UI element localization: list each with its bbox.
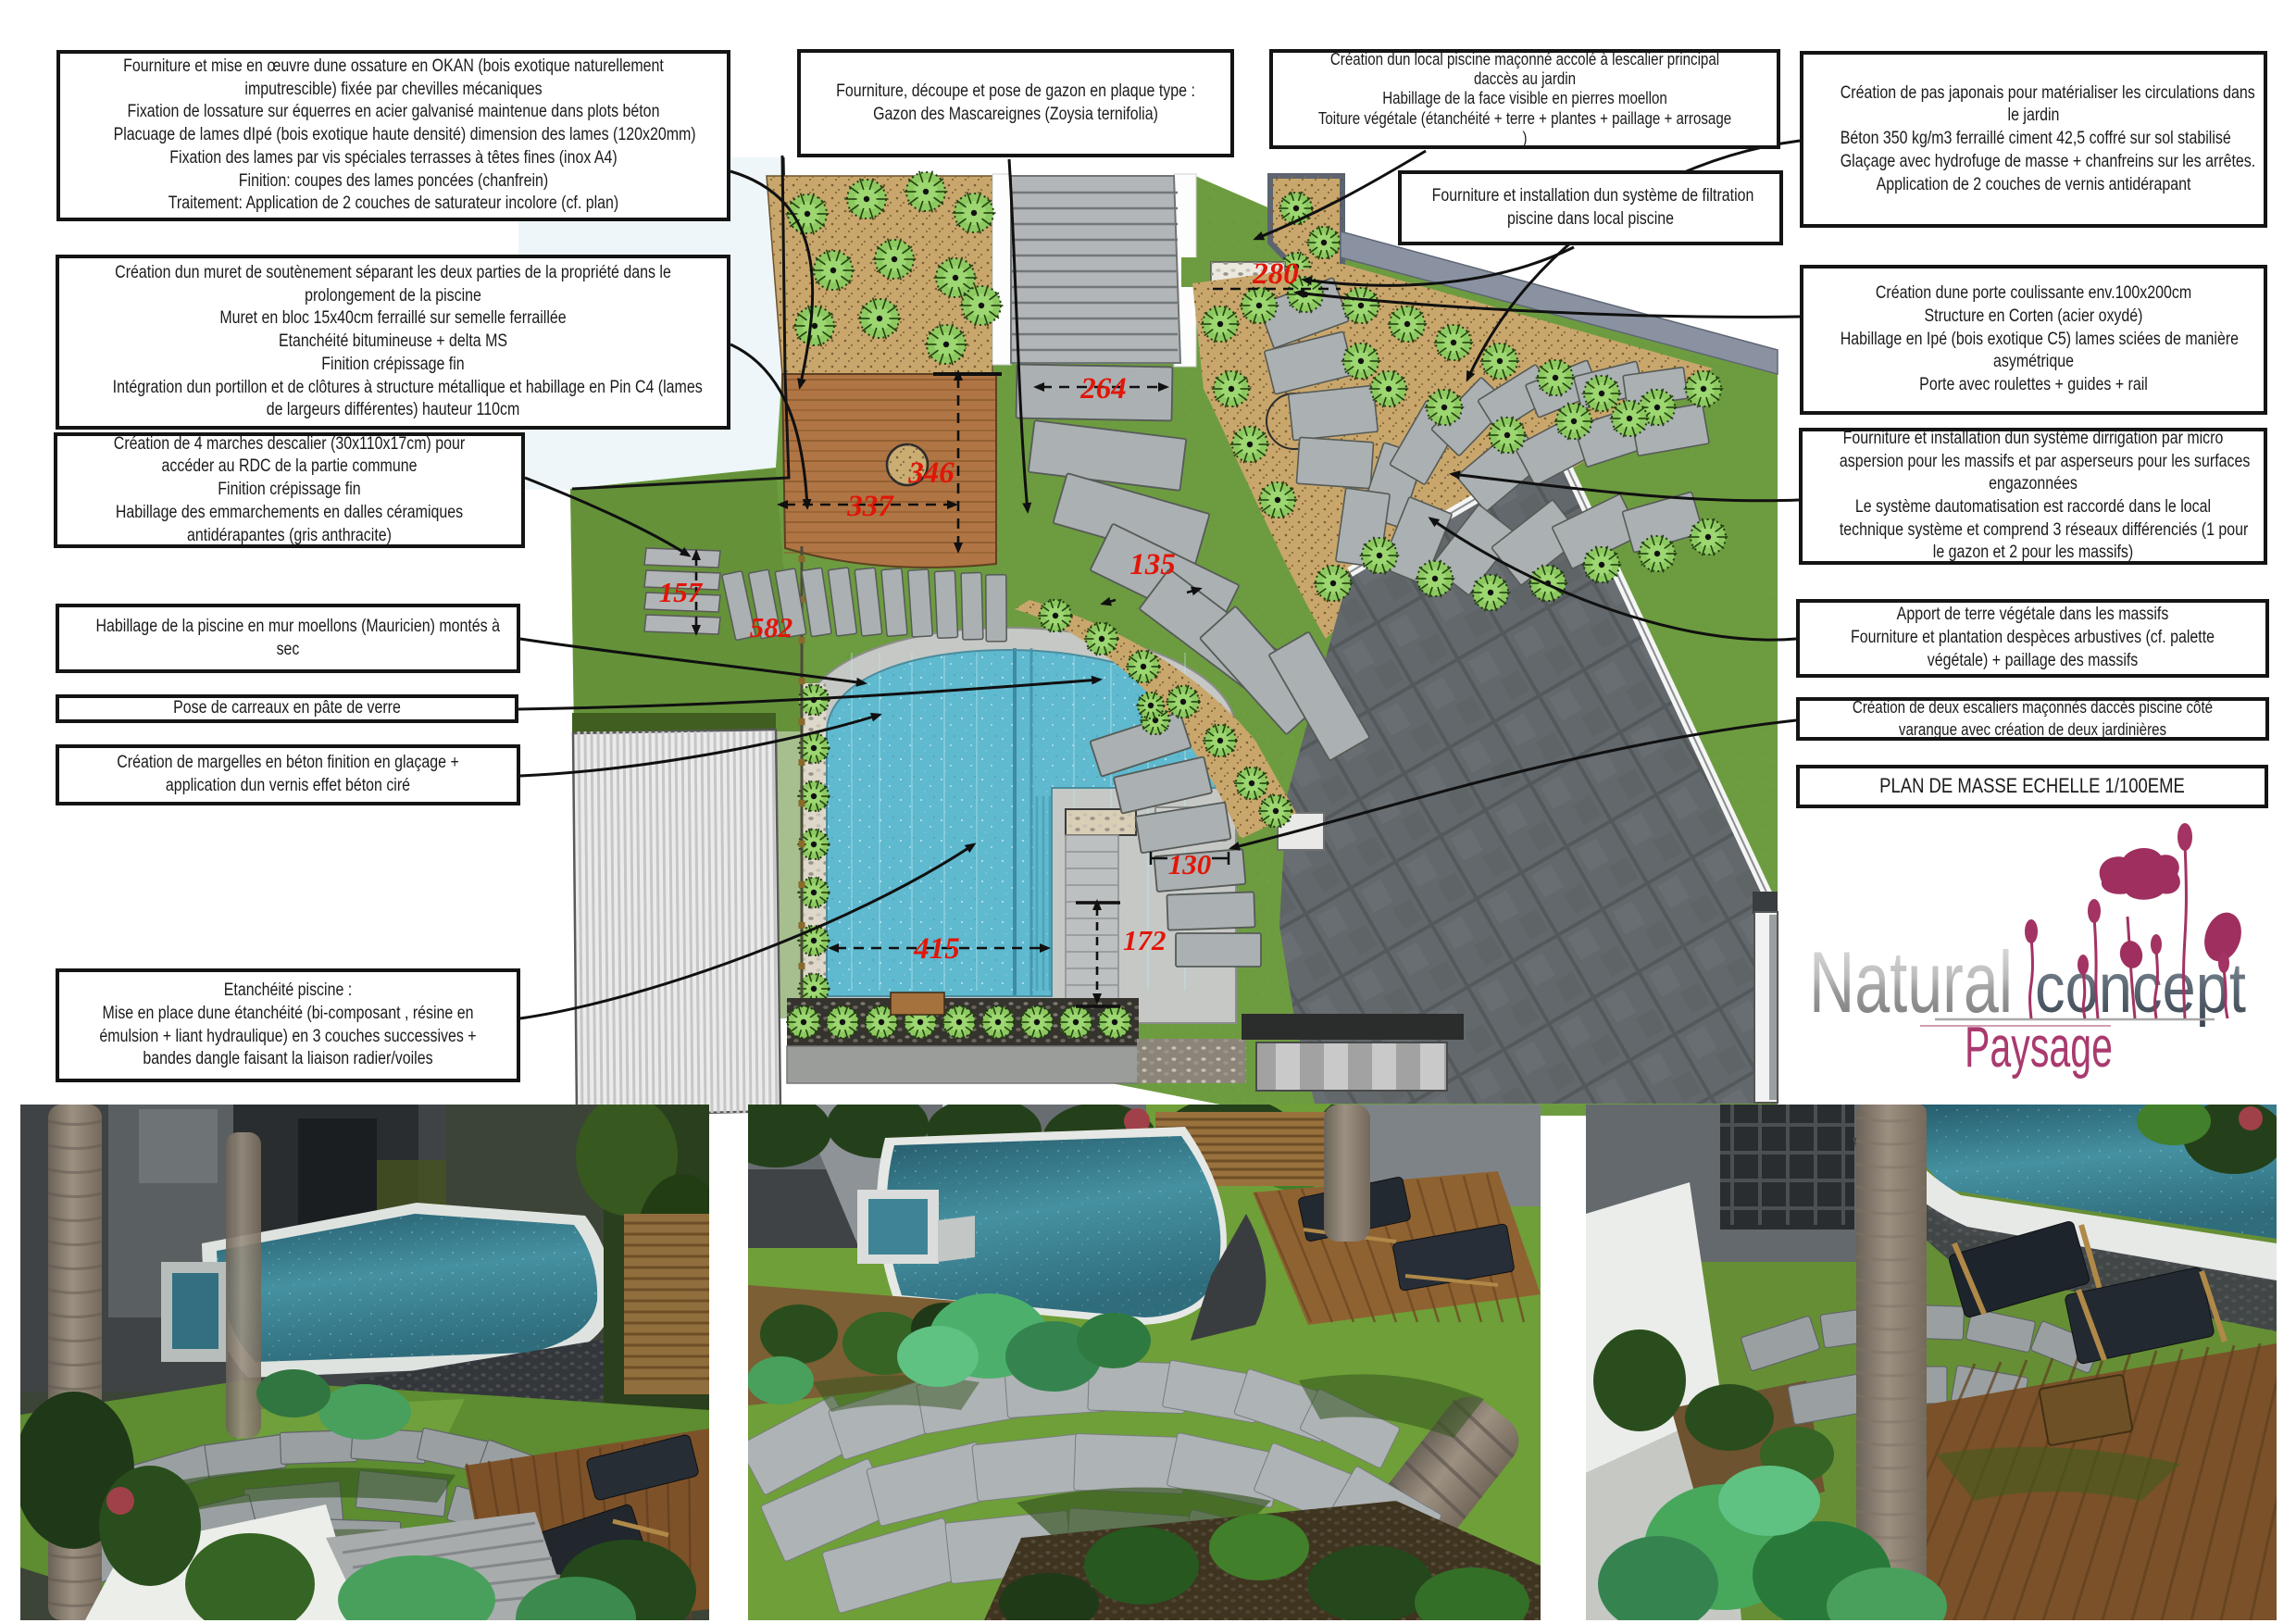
svg-text:280: 280 (1252, 257, 1299, 291)
svg-text:Paysage: Paysage (1965, 1016, 2113, 1080)
svg-text:157: 157 (659, 576, 704, 608)
svg-text:582: 582 (750, 611, 793, 643)
svg-text:172: 172 (1123, 924, 1167, 956)
svg-text:130: 130 (1168, 848, 1212, 880)
svg-text:337: 337 (846, 490, 894, 523)
svg-text:415: 415 (913, 932, 960, 966)
svg-text:135: 135 (1129, 548, 1176, 581)
svg-text:346: 346 (907, 456, 955, 490)
svg-text:264: 264 (1079, 372, 1127, 406)
